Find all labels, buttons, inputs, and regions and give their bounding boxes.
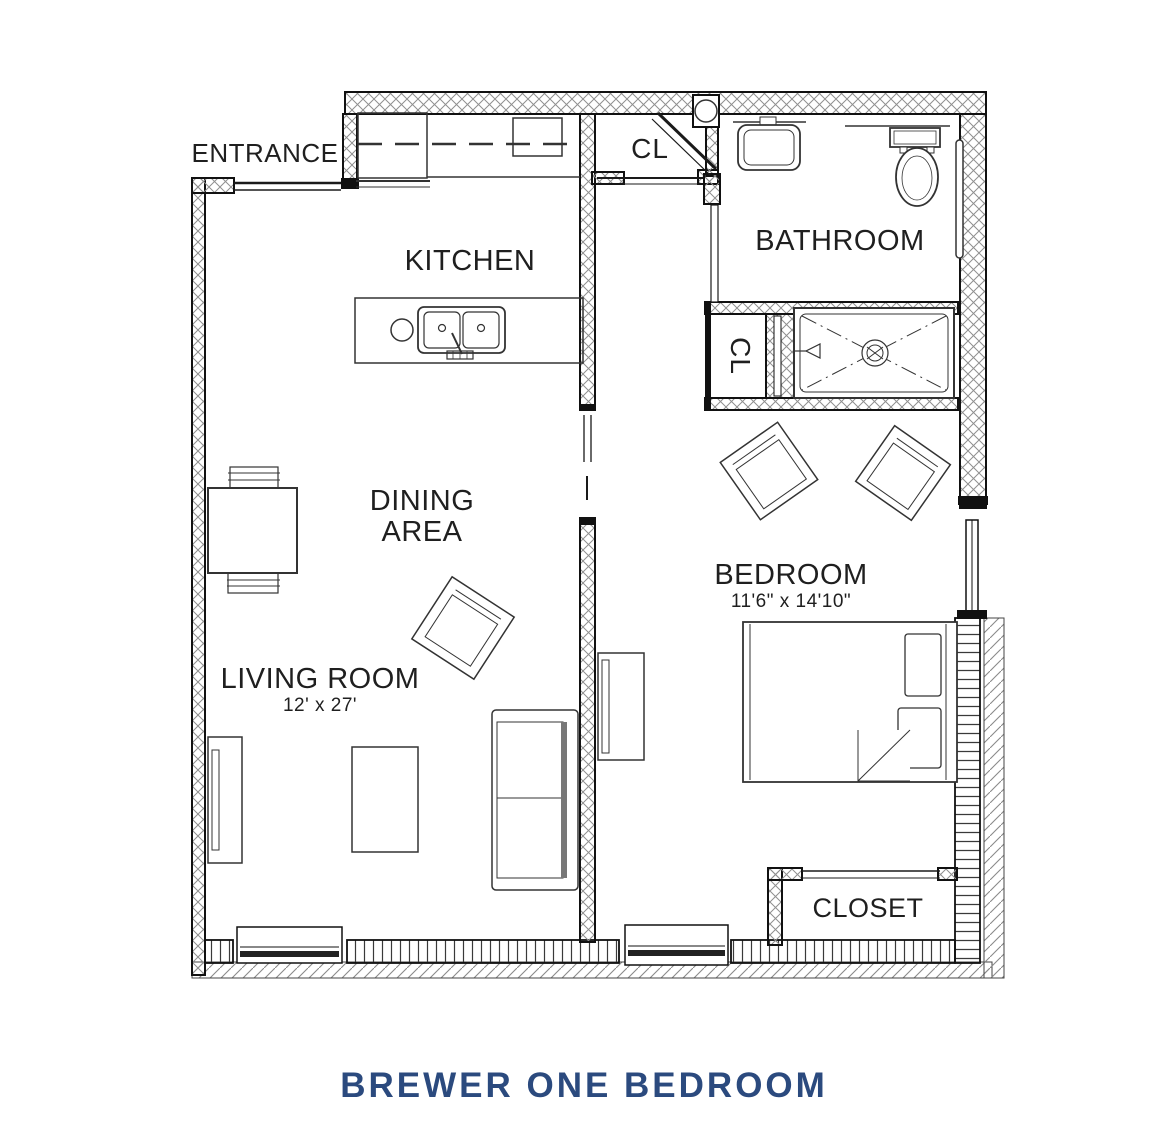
window-bottom-center [347, 940, 619, 963]
pillow-top [905, 634, 941, 696]
bedroom-dimensions: 11'6" x 14'10" [731, 591, 851, 612]
blanket-fold [858, 730, 910, 781]
bedroom-armchair-right [856, 426, 951, 521]
wall-top [345, 92, 986, 114]
living-furniture [208, 710, 578, 890]
wall-shower-block-bottom [705, 398, 958, 410]
window-bottom-left [205, 940, 233, 963]
closet-top-label: CL [631, 133, 669, 164]
grab-bar [956, 140, 963, 258]
plan-title: BREWER ONE BEDROOM [0, 1066, 1168, 1106]
closet-hall-label: CL [725, 337, 756, 375]
dining-table [208, 488, 297, 573]
wall-east-bathroom [960, 114, 986, 502]
wall-kitchen-west [343, 114, 357, 182]
wall-closet-stub-left [768, 868, 802, 880]
wall-entrance-stub [192, 178, 234, 193]
sofa [492, 710, 578, 890]
kitchen-island [355, 298, 583, 363]
bedroom-label: BEDROOM [714, 559, 867, 591]
double-sink [418, 307, 505, 353]
dining-armchair [412, 577, 514, 679]
bed [743, 622, 957, 782]
bathroom-label: BATHROOM [755, 225, 924, 257]
floor-plan-drawing: ENTRANCE KITCHEN CL BATHROOM CL DINING A… [0, 0, 1168, 1040]
window-bedroom-east [955, 618, 980, 963]
wall-closet-stub-right [938, 868, 957, 880]
kitchen-label: KITCHEN [405, 245, 536, 277]
stove [513, 118, 562, 156]
bathroom-door-leaf [711, 205, 718, 302]
living-room-label: LIVING ROOM [221, 663, 420, 695]
wall-bathroom-west-stub [704, 174, 720, 204]
window-right-upper [957, 498, 987, 619]
entrance-door [234, 183, 341, 190]
shower [794, 308, 954, 398]
dining-chair-bottom [227, 573, 280, 593]
closet-bedroom-label: CLOSET [812, 893, 923, 923]
wall-center-upper [580, 114, 595, 410]
window-bottom-right [731, 940, 955, 963]
closet-opening [802, 871, 940, 878]
entrance-label: ENTRANCE [191, 138, 338, 168]
kitchen-fixtures [355, 113, 583, 363]
tv-console [208, 737, 242, 863]
living-room-dimensions: 12' x 27' [283, 695, 357, 716]
bay-window-left [237, 927, 342, 963]
coffee-table [352, 747, 418, 852]
burner [391, 319, 413, 341]
toilet [845, 126, 950, 206]
bay-window-center [625, 925, 728, 965]
dining-chair-top [228, 467, 280, 488]
wall-center-lower [580, 518, 595, 942]
bathroom-sink [733, 117, 806, 170]
floor-plan-page: ENTRANCE KITCHEN CL BATHROOM CL DINING A… [0, 0, 1168, 1142]
shower-divider-slot [774, 316, 781, 396]
structural-column [693, 95, 719, 127]
bedroom-sliding-door [584, 415, 591, 500]
bedroom-armchair-left [720, 422, 817, 519]
wall-west [192, 178, 205, 975]
refrigerator [358, 113, 427, 178]
dining-label-line1: DINING [370, 485, 475, 517]
dresser [598, 653, 644, 760]
dining-label-line2: AREA [382, 516, 463, 548]
